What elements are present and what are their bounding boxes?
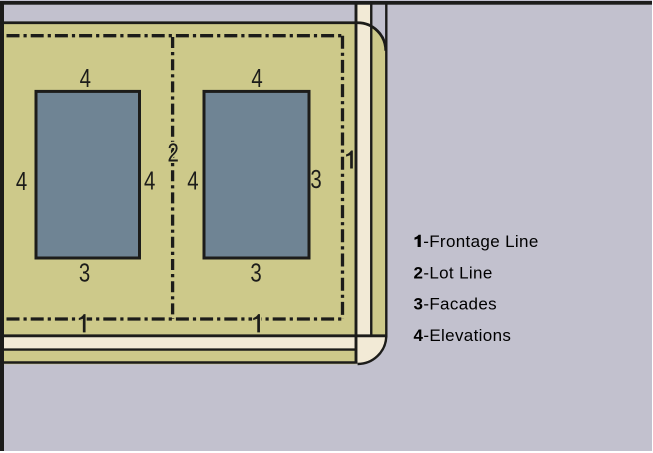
svg-text:2: 2 [168,138,179,167]
svg-text:3: 3 [250,258,261,287]
svg-text:3: 3 [310,165,321,194]
svg-text:4: 4 [187,166,198,195]
svg-text:3-Facades: 3-Facades [414,295,497,314]
svg-text:4: 4 [251,64,262,93]
svg-text:4: 4 [80,64,91,93]
svg-text:4-Elevations: 4-Elevations [414,326,512,345]
svg-text:3: 3 [79,258,90,287]
svg-text:-Frontage Line: -Frontage Line [423,232,538,251]
svg-text:4: 4 [144,166,155,195]
svg-text:2-Lot Line: 2-Lot Line [414,263,493,282]
svg-text:4: 4 [16,167,27,196]
